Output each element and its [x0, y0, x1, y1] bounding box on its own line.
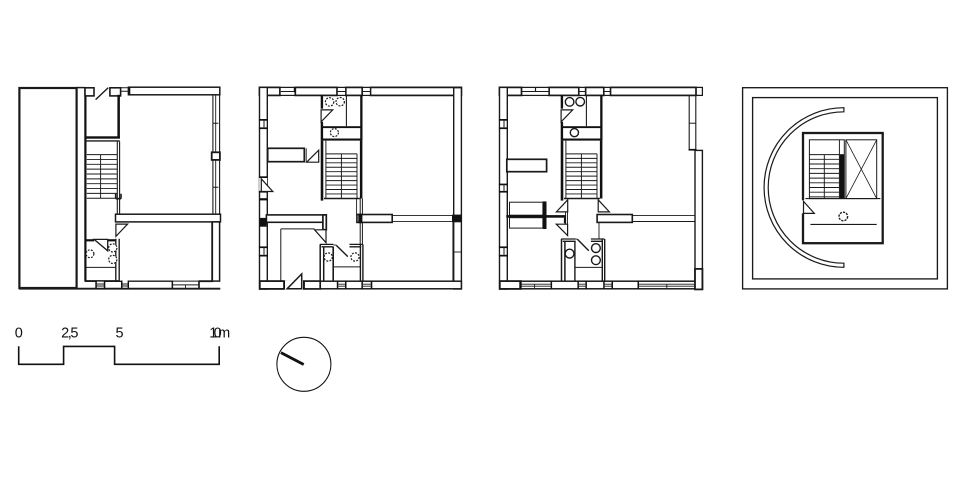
svg-text:0: 0 — [15, 326, 23, 342]
svg-text:5: 5 — [115, 326, 123, 342]
svg-text:2,5: 2,5 — [61, 326, 78, 342]
svg-text:10m: 10m — [209, 326, 230, 342]
